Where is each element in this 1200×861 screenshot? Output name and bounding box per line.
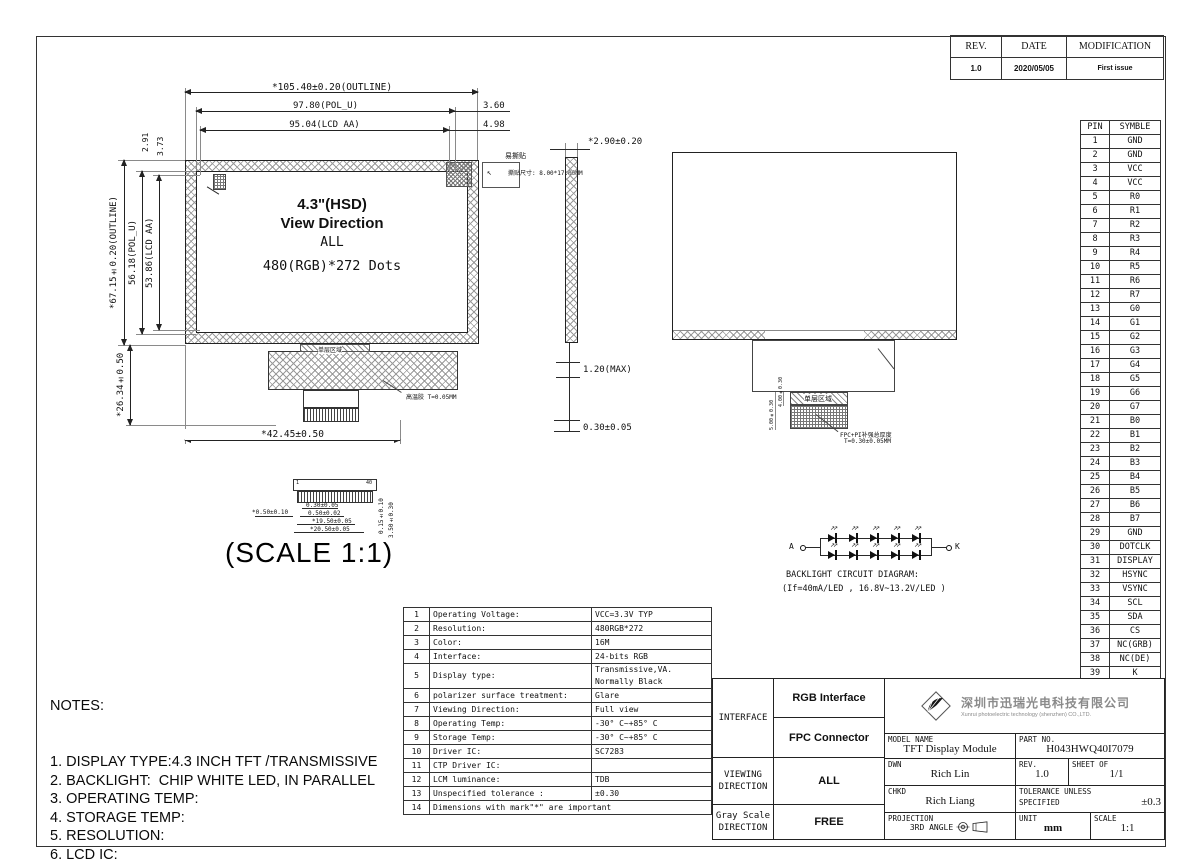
interface-label-cell: INTERFACE — [712, 678, 774, 758]
pin-row: 10R5 — [1081, 261, 1161, 275]
title-rev-value: 1.0 — [1016, 768, 1068, 780]
dim-aa-width: 95.04(LCD AA) — [200, 120, 449, 130]
dim-pol-width: 97.80(POL_U) — [196, 101, 455, 111]
rear-single-layer-label: 单层区域 — [804, 394, 832, 404]
led-diode-icon — [870, 534, 877, 542]
anode-label: A — [789, 542, 794, 551]
rev-cell: REV. 1.0 — [1015, 758, 1069, 786]
side-fpc-tail-line — [569, 343, 570, 431]
spec-row: 2Resolution:480RGB*272 — [404, 622, 712, 636]
pin-row: 7R2 — [1081, 219, 1161, 233]
pin-table-body: 1GND2GND3VCC4VCC5R06R17R28R39R410R511R61… — [1081, 135, 1161, 695]
tolerance-value: ±0.3 — [1141, 796, 1161, 808]
pin-row: 34SCL — [1081, 597, 1161, 611]
pin-row: 13G0 — [1081, 303, 1161, 317]
note-item: 2. BACKLIGHT: CHIP WHITE LED, IN PARALLE… — [50, 772, 377, 791]
engineering-drawing-sheet: REV. DATE MODIFICATION 1.0 2020/05/05 Fi… — [0, 0, 1200, 861]
dim-fpc-height: *26.34±0.50 — [116, 345, 126, 425]
spec-row: 1Operating Voltage:VCC=3.3V TYP — [404, 608, 712, 622]
notes-title: NOTES: — [50, 697, 377, 716]
led-diode-icon — [912, 534, 919, 542]
pin-row: 14G1 — [1081, 317, 1161, 331]
spec-row: 3Color:16M — [404, 636, 712, 650]
fpc-connector-cell: FPC Connector — [773, 717, 885, 758]
side-panel-bar — [565, 157, 578, 343]
spec-table-body: 1Operating Voltage:VCC=3.3V TYP2Resoluti… — [404, 608, 712, 815]
spec-row: 13Unspecified tolerance :±0.30 — [404, 787, 712, 801]
led-diode-icon — [891, 551, 898, 559]
dim-fpc-bend: 1.20(MAX) — [583, 365, 632, 375]
interface-label: INTERFACE — [713, 679, 773, 757]
pin-row: 23B2 — [1081, 443, 1161, 457]
company-logo-icon — [919, 689, 953, 723]
dim-fpc-width: *42.45±0.50 — [185, 429, 400, 440]
pin-row: 36CS — [1081, 625, 1161, 639]
viewing-label-2: DIRECTION — [719, 781, 768, 793]
date-value: 2020/05/05 — [1002, 58, 1067, 80]
pin-row: 21B0 — [1081, 415, 1161, 429]
dwn-cell: DWN Rich Lin — [884, 758, 1016, 786]
spec-table: 1Operating Voltage:VCC=3.3V TYP2Resoluti… — [403, 607, 712, 815]
led-row-top — [828, 534, 933, 542]
modification-value: First issue — [1067, 58, 1164, 80]
chkd-cell: CHKD Rich Liang — [884, 785, 1016, 813]
pin-row: 31DISPLAY — [1081, 555, 1161, 569]
pin-row: 4VCC — [1081, 177, 1161, 191]
company-cell: 深圳市迅瑞光电科技有限公司 Xunrui photoelectric techn… — [884, 678, 1165, 734]
dim-right-1: 3.60 — [483, 101, 505, 111]
company-name-en: Xunrui photoelectric technology (shenzhe… — [961, 712, 1130, 718]
company-name-cn: 深圳市迅瑞光电科技有限公司 — [961, 694, 1130, 711]
pin-column-header: PIN — [1081, 121, 1110, 135]
led-diode-icon — [849, 534, 856, 542]
part-no-cell: PART NO. H043HWQ40I7079 — [1015, 733, 1165, 759]
unit-cell: UNIT mm — [1015, 812, 1091, 840]
led-diode-icon — [912, 551, 919, 559]
pin-row: 30DOTCLK — [1081, 541, 1161, 555]
rev-header: REV. — [951, 36, 1002, 58]
gray-scale-value-cell: FREE — [773, 804, 885, 840]
pin-row: 24B3 — [1081, 457, 1161, 471]
pin-row: 27B6 — [1081, 499, 1161, 513]
pin-row: 11R6 — [1081, 275, 1161, 289]
model-name-value: TFT Display Module — [885, 743, 1015, 755]
fpc-connector-body — [303, 390, 359, 408]
view-direction-label: View Direction — [232, 215, 432, 232]
pin-row: 6R1 — [1081, 205, 1161, 219]
pin-row: 33VSYNC — [1081, 583, 1161, 597]
display-info: 4.3"(HSD) View Direction ALL 480(RGB)*27… — [232, 196, 432, 274]
sheet-cell: SHEET OF 1/1 — [1068, 758, 1165, 786]
spec-row: 7Viewing Direction:Full view — [404, 703, 712, 717]
viewing-label-1: VIEWING — [724, 769, 762, 781]
detail-dim-left: *0.50±0.10 — [252, 509, 288, 516]
notes: NOTES: 1. DISPLAY TYPE:4.3 INCH TFT /TRA… — [50, 660, 377, 861]
pin-row: 16G3 — [1081, 345, 1161, 359]
led-diode-icon — [828, 551, 835, 559]
fpc-gold-fingers — [303, 408, 359, 422]
pin-row: 35SDA — [1081, 611, 1161, 625]
pin-row: 20G7 — [1081, 401, 1161, 415]
revision-table: REV. DATE MODIFICATION 1.0 2020/05/05 Fi… — [950, 35, 1164, 80]
sheet-value: 1/1 — [1069, 768, 1164, 780]
view-direction-value: ALL — [232, 235, 432, 250]
pin-row: 22B1 — [1081, 429, 1161, 443]
scale-label: (SCALE 1:1) — [225, 537, 393, 569]
rear-fpc-note-2: T=0.30±0.05MM — [844, 438, 891, 445]
pin-row: 9R4 — [1081, 247, 1161, 261]
pin-row: 37NC(GRB) — [1081, 639, 1161, 653]
rear-dim-small-2: 5.00±0.30 — [769, 404, 775, 430]
pin-row: 32HSYNC — [1081, 569, 1161, 583]
pin-row: 25B4 — [1081, 471, 1161, 485]
single-layer-label: 单层区域 — [318, 345, 342, 354]
rear-panel-outline — [672, 152, 957, 340]
scale-cell: SCALE 1:1 — [1090, 812, 1165, 840]
viewing-direction-value-cell: ALL — [773, 757, 885, 805]
detail-pin40-label: 40 — [366, 480, 372, 486]
rear-frame-strip-left — [673, 331, 765, 339]
modification-header: MODIFICATION — [1067, 36, 1164, 58]
dim-outline-width: *105.40±0.20(OUTLINE) — [185, 82, 479, 93]
detail-pin1-label: 1 — [296, 480, 299, 486]
pin-row: 3VCC — [1081, 163, 1161, 177]
led-row-bottom — [828, 551, 933, 559]
tolerance-label-2: SPECIFIED — [1019, 798, 1060, 807]
rev-value: 1.0 — [951, 58, 1002, 80]
pin-row: 2GND — [1081, 149, 1161, 163]
note-item: 3. OPERATING TEMP: — [50, 790, 377, 809]
resolution-label: 480(RGB)*272 Dots — [232, 258, 432, 274]
revision-row: 1.0 2020/05/05 First issue — [951, 58, 1164, 80]
note-item: 6. LCD IC: — [50, 846, 377, 861]
viewing-direction-label-cell: VIEWING DIRECTION — [712, 757, 774, 805]
spec-row: 9Storage Temp:-30° C~+85° C — [404, 731, 712, 745]
detail-dim-right-1: 0.15±0.10 — [378, 498, 385, 534]
gray-label-2: DIRECTION — [719, 822, 768, 834]
fpc-tail — [268, 351, 458, 390]
pin-row: 26B5 — [1081, 485, 1161, 499]
title-block: INTERFACE RGB Interface FPC Connector VI… — [712, 678, 1165, 840]
rear-fpc-outline — [752, 340, 895, 392]
polarizer-mark-icon — [213, 174, 226, 190]
dim-fpc-thickness: 0.30±0.05 — [583, 423, 632, 433]
title-scale-value: 1:1 — [1091, 822, 1164, 834]
anode-terminal — [800, 545, 806, 551]
sticker-callout-arrow: ↖ — [487, 168, 492, 177]
pin-row: 28B7 — [1081, 513, 1161, 527]
detail-dim-2: 0.50±0.02 — [308, 510, 341, 517]
led-diode-icon — [891, 534, 898, 542]
spec-row: 14Dimensions with mark"*" are important — [404, 801, 712, 815]
tolerance-label-1: TOLERANCE UNLESS — [1016, 786, 1164, 796]
note-item: 5. RESOLUTION: — [50, 827, 377, 846]
rear-dim-small-1: 4.00±0.30 — [778, 393, 784, 407]
dwn-value: Rich Lin — [885, 768, 1015, 780]
led-diode-icon — [870, 551, 877, 559]
chkd-value: Rich Liang — [885, 795, 1015, 807]
projection-cell: PROJECTION 3RD ANGLE — [884, 812, 1016, 840]
sticker-label: 易撕贴 — [505, 151, 526, 161]
dim-left-small-2: 3.73 — [156, 122, 165, 156]
note-item: 4. STORAGE TEMP: — [50, 809, 377, 828]
notes-list: 1. DISPLAY TYPE:4.3 INCH TFT /TRANSMISSI… — [50, 753, 377, 861]
spec-row: 5Display type:Transmissive,VA.Normally B… — [404, 664, 712, 689]
spec-row: 10Driver IC:SC7283 — [404, 745, 712, 759]
pin-row: 12R7 — [1081, 289, 1161, 303]
tape-note: 高温胶 T=0.05MM — [406, 392, 457, 401]
detail-dim-right-2: 3.50±0.30 — [388, 498, 395, 538]
pin-row: 1GND — [1081, 135, 1161, 149]
pin-row: 15G2 — [1081, 331, 1161, 345]
rgb-interface-value: RGB Interface — [774, 679, 884, 717]
model-name-cell: MODEL NAME TFT Display Module — [884, 733, 1016, 759]
cathode-terminal — [946, 545, 952, 551]
symbol-column-header: SYMBLE — [1110, 121, 1161, 135]
gray-scale-label-cell: Gray Scale DIRECTION — [712, 804, 774, 840]
backlight-title: BACKLIGHT CIRCUIT DIAGRAM: — [786, 570, 919, 580]
spec-row: 12LCM luminance:TDB — [404, 773, 712, 787]
pin-row: 8R3 — [1081, 233, 1161, 247]
revision-header-row: REV. DATE MODIFICATION — [951, 36, 1164, 58]
spec-row: 4Interface:24-bits RGB — [404, 650, 712, 664]
pin-row: 17G4 — [1081, 359, 1161, 373]
tolerance-cell: TOLERANCE UNLESS SPECIFIED ±0.3 — [1015, 785, 1165, 813]
gray-scale-value: FREE — [774, 805, 884, 839]
led-diode-icon — [849, 551, 856, 559]
pin-row: 29GND — [1081, 527, 1161, 541]
detail-connector-body — [293, 479, 377, 491]
viewing-direction-value: ALL — [774, 758, 884, 804]
dim-outline-height: *67.15±0.20(OUTLINE) — [109, 160, 119, 345]
cathode-label: K — [955, 542, 960, 551]
detail-dim-3: *19.50±0.05 — [312, 518, 352, 525]
dim-right-2: 4.98 — [483, 120, 505, 130]
dim-aa-height: 53.86(LCD AA) — [145, 175, 155, 330]
pin-table: PIN SYMBLE 1GND2GND3VCC4VCC5R06R17R28R39… — [1080, 120, 1161, 695]
unit-value: mm — [1016, 822, 1090, 834]
fpc-connector-value: FPC Connector — [774, 718, 884, 757]
led-diode-icon — [828, 534, 835, 542]
pin-row: 38NC(DE) — [1081, 653, 1161, 667]
spec-row: 6polarizer surface treatment:Glare — [404, 689, 712, 703]
pin-row: 18G5 — [1081, 373, 1161, 387]
part-no-value: H043HWQ40I7079 — [1016, 743, 1164, 755]
dim-side-thickness: *2.90±0.20 — [588, 137, 642, 147]
projection-value: 3RD ANGLE — [910, 823, 953, 832]
rgb-interface-cell: RGB Interface — [773, 678, 885, 718]
pin-table-header-row: PIN SYMBLE — [1081, 121, 1161, 135]
pin-row: 19G6 — [1081, 387, 1161, 401]
dim-pol-height: 56.18(POL_U) — [128, 171, 138, 334]
spec-row: 11CTP Driver IC: — [404, 759, 712, 773]
pin-row: 5R0 — [1081, 191, 1161, 205]
dim-left-small-1: 2.91 — [141, 118, 150, 152]
date-header: DATE — [1002, 36, 1067, 58]
gray-label-1: Gray Scale — [716, 810, 770, 822]
backlight-subtitle: (If=40mA/LED , 16.8V~13.2V/LED ) — [782, 584, 946, 594]
detail-dim-4: *20.50±0.05 — [310, 526, 350, 533]
spec-row: 8Operating Temp:-30° C~+85° C — [404, 717, 712, 731]
detail-dim-1: 0.30±0.05 — [306, 502, 339, 509]
display-size-label: 4.3"(HSD) — [232, 196, 432, 213]
note-item: 1. DISPLAY TYPE:4.3 INCH TFT /TRANSMISSI… — [50, 753, 377, 772]
third-angle-projection-icon — [956, 821, 990, 833]
rear-frame-strip-right — [864, 331, 956, 339]
